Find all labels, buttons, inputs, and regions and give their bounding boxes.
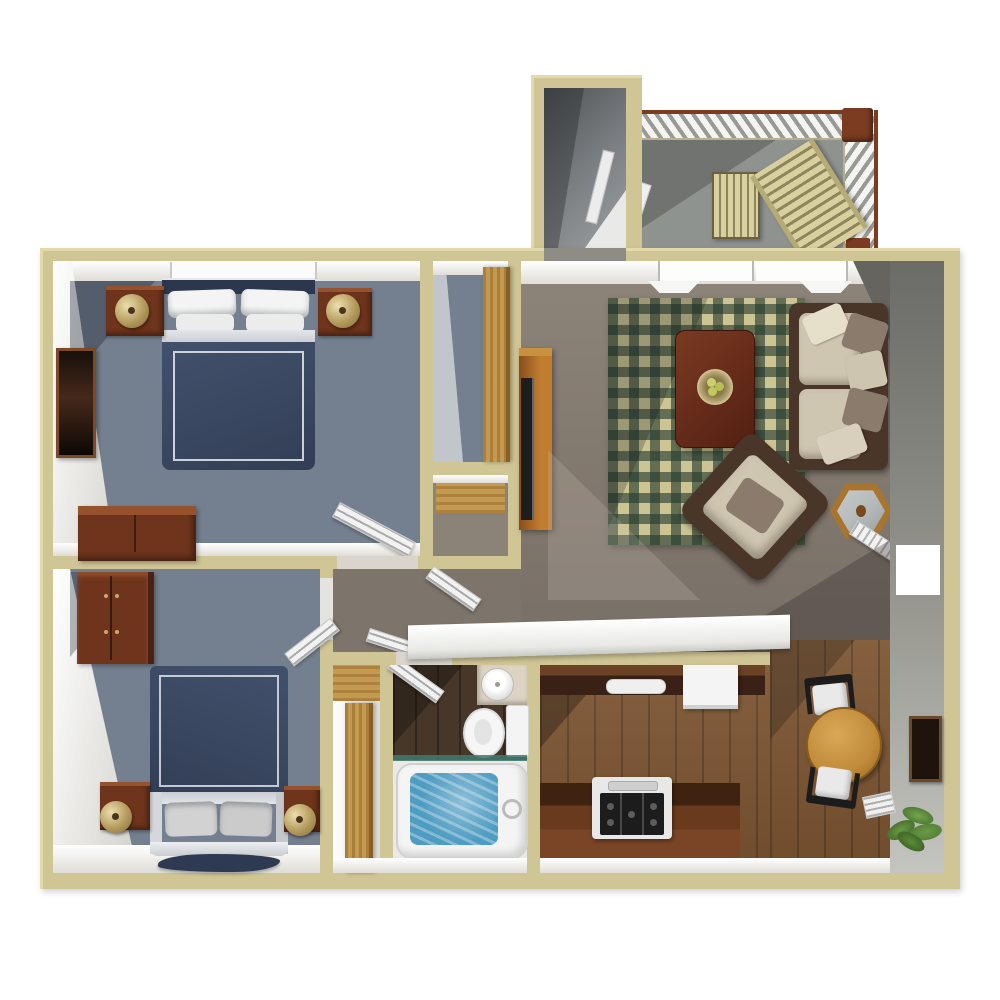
stairwell-interior — [544, 88, 626, 248]
bathtub-drain — [502, 799, 522, 819]
stove — [592, 777, 672, 839]
tv-screen — [521, 378, 534, 520]
railing-corner-post — [842, 108, 873, 142]
closet-walkin-wood-door — [483, 267, 510, 462]
bed1-lamp-right — [326, 294, 360, 328]
bed2-comforter — [150, 666, 288, 794]
bedroom1-door-gap — [337, 556, 418, 569]
bedroom1-dresser — [78, 506, 196, 561]
bed1-comforter — [162, 342, 315, 470]
dining-chair-bottom — [805, 763, 860, 812]
bathtub — [396, 763, 528, 859]
chair-cushion — [815, 766, 853, 800]
toilet-bowl — [463, 708, 505, 758]
bed1-comforter-trim — [173, 351, 304, 461]
bath-bottom-wallface — [333, 858, 527, 873]
living-window-2 — [756, 261, 848, 281]
fruit-bowl — [697, 369, 733, 405]
bedroom1-wall-picture — [56, 348, 96, 458]
balcony-railing-top — [639, 110, 865, 140]
sofa-pillow — [844, 349, 889, 392]
bed2-pillow — [164, 801, 217, 837]
floor-plan — [0, 0, 1000, 1000]
entry-door-opening2 — [896, 545, 940, 595]
stairwell-opening — [544, 248, 626, 262]
bed2-pillow — [219, 801, 272, 837]
kitchen-bottom-wallface — [540, 858, 890, 873]
bed2-comforter-trim — [159, 675, 279, 787]
bed1-lamp-left — [115, 294, 149, 328]
bed1 — [162, 278, 315, 470]
bathroom-basin — [481, 668, 514, 701]
living-window-1 — [658, 261, 754, 281]
bedroom2-armoire — [77, 572, 154, 664]
sofa — [789, 303, 888, 470]
hall-closet-wood-door — [345, 703, 373, 873]
stove-burners — [600, 793, 664, 835]
stove-vent-slot — [608, 781, 658, 791]
toilet-tank — [506, 705, 529, 757]
closet-linen-top-wallface — [433, 475, 508, 483]
bedroom1-window — [170, 262, 317, 279]
bed2 — [150, 666, 288, 862]
bed2-bedside-rug — [158, 854, 280, 872]
bed2-lamp-right — [284, 804, 316, 836]
hall-closet-wood-floor — [333, 665, 380, 701]
refrigerator — [683, 665, 738, 709]
closet-linen-wood-floor — [436, 479, 505, 513]
wall-art — [909, 716, 942, 782]
bathtub-water — [410, 773, 498, 845]
potted-plant — [884, 796, 942, 854]
bed2-lamp-left — [100, 801, 132, 833]
kitchen-sink — [606, 679, 666, 694]
